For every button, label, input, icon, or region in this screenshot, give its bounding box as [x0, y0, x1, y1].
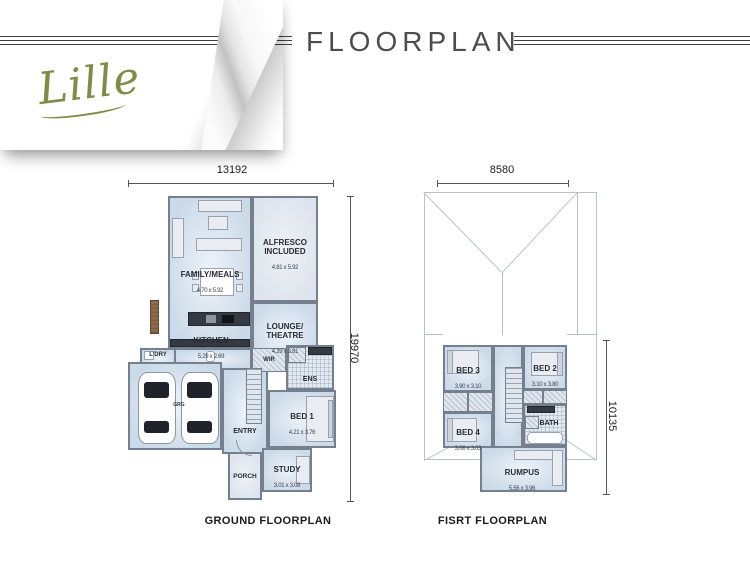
room-name: BED 3	[443, 367, 493, 376]
first-width-dimension-line	[437, 180, 569, 187]
room-name: FAMILY/MEALS	[168, 271, 252, 280]
car-icon	[181, 372, 219, 444]
room-dim: 4.81 x 5.92	[252, 265, 318, 272]
label-entry: ENTRY	[222, 428, 268, 436]
sofa-icon	[172, 218, 184, 258]
room-name: ALFRESCO INCLUDED	[252, 239, 318, 257]
room-name: LOUNGE/ THEATRE	[252, 323, 318, 341]
stairs-ground	[246, 368, 262, 424]
vanity-icon	[527, 406, 555, 413]
cooktop-icon	[222, 315, 234, 323]
page-title: FLOORPLAN	[306, 26, 506, 58]
label-study: STUDY 3.01 x 3.08	[262, 457, 312, 499]
label-rumpus: RUMPUS 5.56 x 3.96	[490, 460, 554, 502]
pantry-icon	[150, 300, 159, 334]
car-windshield	[187, 382, 212, 398]
label-bed3: BED 3 3.90 x 3.10	[443, 358, 493, 400]
room-dim: 5.56 x 3.96	[490, 486, 554, 493]
first-floorplan-caption: FISRT FLOORPLAN	[400, 515, 585, 527]
first-height-dimension: 10135	[606, 386, 618, 446]
roof-eave-line	[424, 334, 443, 335]
room-dim: 4.29 x 3.81	[252, 349, 318, 356]
roof-ridge-line	[502, 272, 503, 335]
ground-width-dimension-line	[128, 180, 334, 187]
ground-height-dimension: 19970	[348, 318, 360, 378]
stairs-first	[505, 367, 523, 423]
label-wir: WIR	[252, 357, 286, 364]
room-dim: 4.70 x 5.92	[168, 288, 252, 295]
bathtub-icon	[527, 432, 563, 444]
label-bed1: BED 1 4.21 x 3.76	[268, 404, 336, 446]
room-name: BED 1	[268, 413, 336, 422]
car-windshield	[144, 382, 169, 398]
room-name: RUMPUS	[490, 469, 554, 478]
room-dim: 3.01 x 3.08	[262, 483, 312, 490]
label-bed2: BED 2 3.10 x 3.80	[523, 356, 567, 398]
room-dim: 3.06 x 3.03	[443, 446, 493, 453]
room-name: BED 2	[523, 365, 567, 374]
label-bath: BATH	[531, 420, 567, 428]
car-rear-window	[187, 421, 212, 433]
label-laundry: L'DRY	[140, 352, 176, 359]
roof-eave-line	[567, 334, 597, 335]
room-dim: 3.90 x 3.10	[443, 384, 493, 391]
sink-icon	[206, 315, 216, 323]
first-width-dimension: 8580	[442, 164, 562, 176]
room-name: KITCHEN	[178, 337, 244, 346]
kitchen-island-bench	[188, 312, 250, 326]
room-dim: 4.21 x 3.76	[268, 430, 336, 437]
label-bed4: BED 4 3.06 x 3.03	[443, 420, 493, 462]
label-ensuite: ENS	[286, 376, 334, 384]
car-icon	[138, 372, 176, 444]
ground-floorplan-caption: GROUND FLOORPLAN	[168, 515, 368, 527]
ground-width-dimension: 13192	[168, 164, 296, 176]
sofa-icon	[196, 238, 242, 251]
roof-edge-line	[577, 192, 578, 335]
label-kitchen: KITCHEN 5.29 x 2.69	[178, 328, 244, 370]
car-rear-window	[144, 421, 169, 433]
header-rule-right	[514, 36, 750, 45]
floorplan-sheet: Lille FLOORPLAN 13192 19970	[0, 0, 750, 578]
label-family-meals: FAMILY/MEALS 4.70 x 5.92	[168, 262, 252, 304]
label-garage: GRG	[173, 402, 185, 408]
room-name: BED 4	[443, 429, 493, 438]
room-name: STUDY	[262, 466, 312, 475]
sofa-icon	[198, 200, 242, 212]
room-dim: 5.29 x 2.69	[178, 354, 244, 361]
label-alfresco: ALFRESCO INCLUDED 4.81 x 5.92	[252, 230, 318, 281]
room-dim: 3.10 x 3.80	[523, 382, 567, 389]
label-porch: PORCH	[228, 473, 262, 480]
coffee-table-icon	[208, 216, 228, 230]
